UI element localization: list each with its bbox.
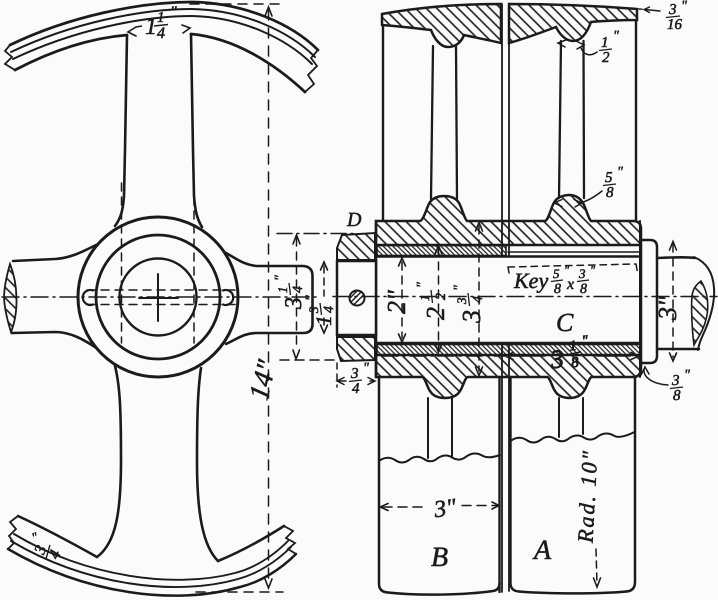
svg-text:": ": [684, 368, 690, 383]
svg-text:1: 1: [311, 315, 336, 326]
svg-text:": ": [363, 361, 369, 376]
svg-text:Key: Key: [513, 268, 548, 293]
svg-text:3": 3": [653, 296, 682, 321]
svg-text:4: 4: [352, 381, 360, 397]
svg-text:4: 4: [471, 296, 486, 303]
svg-text:8: 8: [606, 185, 614, 201]
svg-text:1: 1: [275, 287, 290, 294]
svg-text:4: 4: [291, 286, 306, 293]
svg-text:8: 8: [580, 282, 587, 297]
svg-text:": ": [681, 0, 687, 14]
svg-text:3: 3: [350, 366, 359, 382]
svg-text:2: 2: [602, 50, 610, 66]
svg-text:x: x: [566, 276, 574, 293]
svg-text:": ": [304, 295, 319, 301]
svg-text:16: 16: [667, 17, 683, 33]
svg-text:3: 3: [306, 306, 321, 314]
svg-text:5: 5: [605, 170, 613, 186]
svg-text:2: 2: [434, 293, 449, 300]
svg-text:C: C: [556, 308, 574, 337]
svg-text:": ": [613, 29, 619, 44]
svg-text:2: 2: [421, 307, 450, 320]
svg-text:B: B: [431, 542, 448, 573]
svg-text:": ": [415, 282, 430, 288]
svg-text:5: 5: [553, 266, 560, 281]
svg-text:": ": [273, 275, 288, 281]
svg-text:3: 3: [578, 266, 586, 281]
svg-text:4: 4: [157, 25, 165, 42]
svg-text:3: 3: [671, 373, 680, 389]
svg-text:D: D: [346, 209, 362, 231]
svg-text:8: 8: [554, 282, 561, 297]
svg-text:4: 4: [322, 306, 337, 313]
svg-text:": ": [452, 285, 467, 291]
svg-text:A: A: [532, 535, 552, 566]
svg-text:1: 1: [145, 14, 157, 40]
svg-text:3: 3: [668, 2, 677, 18]
svg-text:3: 3: [457, 310, 486, 324]
svg-text:Rad. 10": Rad. 10": [573, 449, 603, 545]
svg-text:1: 1: [417, 295, 432, 302]
svg-text:1: 1: [157, 10, 165, 26]
svg-text:2": 2": [382, 290, 411, 314]
svg-text:": ": [170, 4, 177, 21]
svg-text:3": 3": [431, 494, 458, 523]
svg-text:1: 1: [601, 35, 609, 51]
svg-text:": ": [617, 165, 623, 180]
svg-text:3: 3: [454, 297, 469, 305]
svg-text:8: 8: [673, 388, 681, 404]
